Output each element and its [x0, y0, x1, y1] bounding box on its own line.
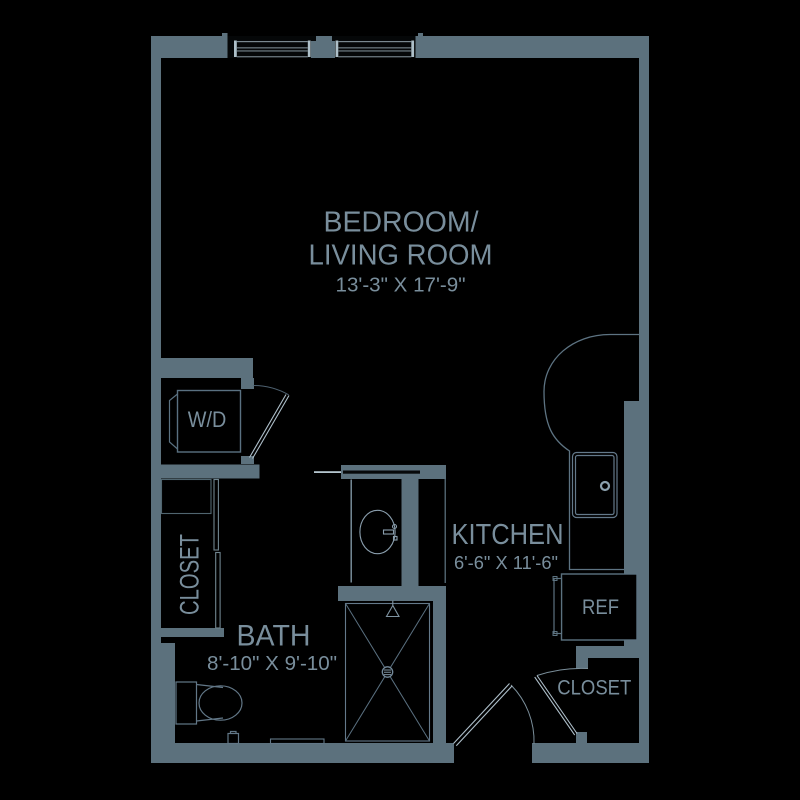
svg-text:8'-10" X 9'-10": 8'-10" X 9'-10" — [207, 653, 337, 675]
svg-text:KITCHEN: KITCHEN — [452, 519, 564, 551]
svg-text:W/D: W/D — [188, 407, 227, 432]
svg-text:13'-3" X 17'-9": 13'-3" X 17'-9" — [336, 275, 466, 297]
svg-text:CLOSET: CLOSET — [175, 534, 205, 615]
svg-text:6'-6" X 11'-6": 6'-6" X 11'-6" — [454, 552, 558, 573]
svg-text:LIVING ROOM: LIVING ROOM — [309, 240, 493, 272]
svg-text:CLOSET: CLOSET — [557, 676, 631, 699]
svg-text:BEDROOM/: BEDROOM/ — [324, 207, 480, 239]
svg-text:BATH: BATH — [237, 620, 311, 653]
svg-text:REF: REF — [582, 595, 619, 619]
